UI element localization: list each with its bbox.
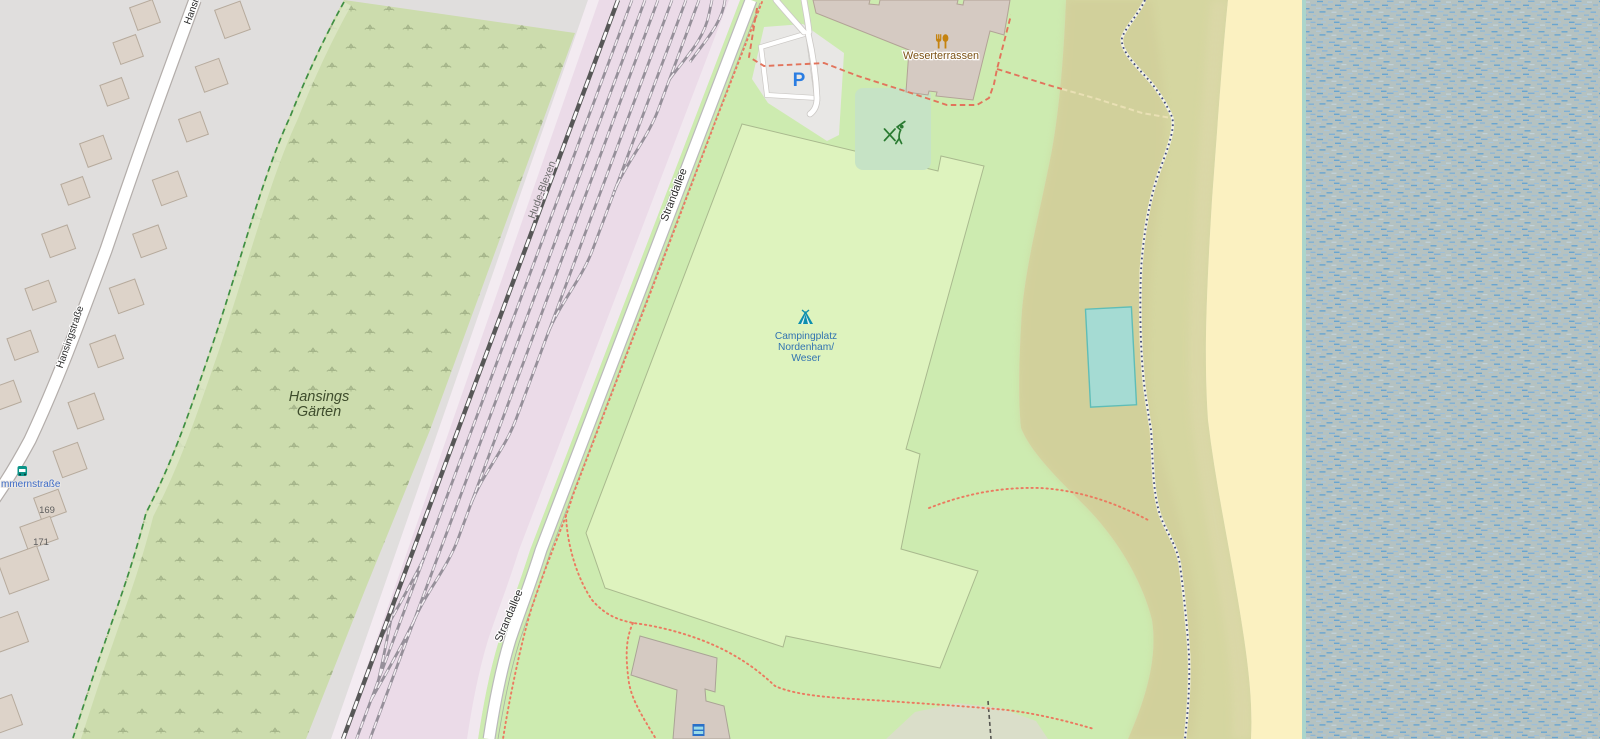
svg-text:Weserterrassen: Weserterrassen — [903, 50, 979, 62]
svg-text:P: P — [793, 70, 806, 91]
svg-text:Hansings: Hansings — [289, 389, 349, 405]
svg-text:169: 169 — [39, 505, 55, 516]
svg-text:171: 171 — [33, 537, 49, 548]
svg-text:Weser: Weser — [791, 353, 821, 364]
svg-text:Gärten: Gärten — [297, 404, 341, 420]
svg-text:Campingplatz: Campingplatz — [775, 331, 837, 342]
svg-text:Nordenham/: Nordenham/ — [778, 342, 834, 353]
svg-text:mmernstraße: mmernstraße — [1, 479, 61, 490]
